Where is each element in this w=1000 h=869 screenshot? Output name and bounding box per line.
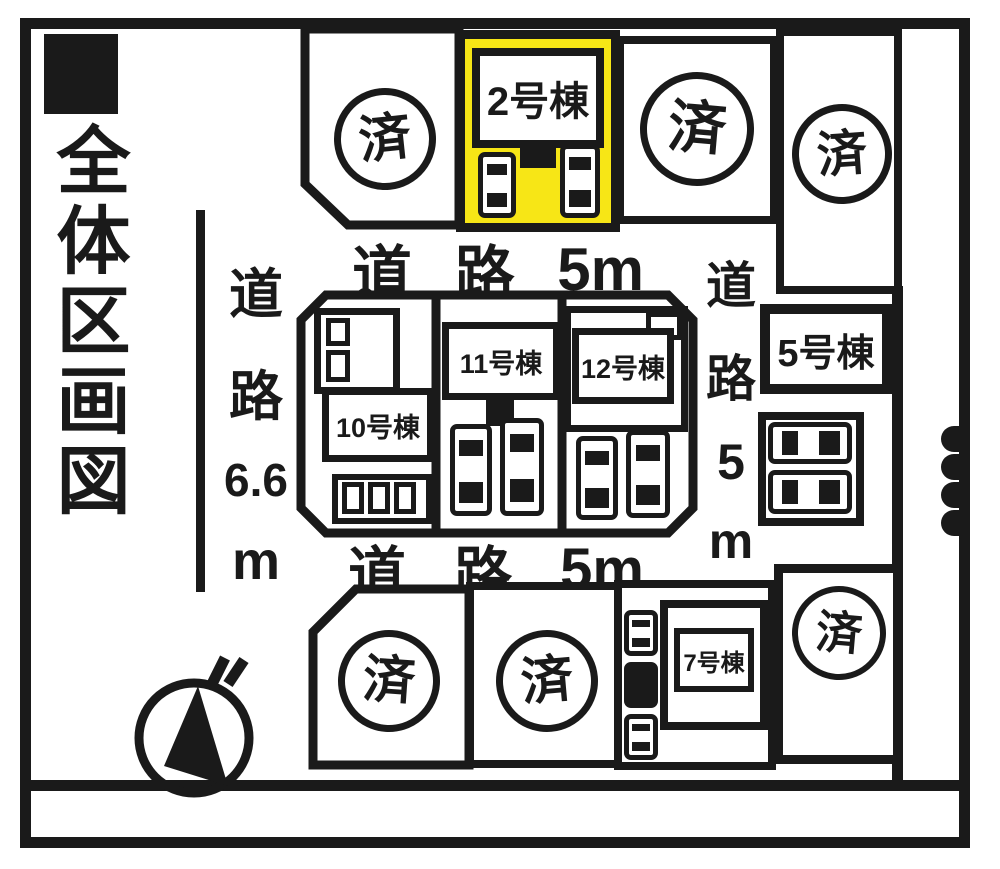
sold-stamp-text: 済 bbox=[815, 127, 868, 180]
building-11-label-text: 11号棟 bbox=[460, 342, 543, 381]
car-icon bbox=[450, 424, 492, 516]
boundary-scallop bbox=[941, 482, 961, 508]
boundary-scallop bbox=[941, 454, 961, 480]
sold-stamp-text: 済 bbox=[361, 653, 417, 709]
sold-stamp-text: 済 bbox=[519, 653, 575, 709]
building-10-label-text: 10号棟 bbox=[336, 406, 420, 445]
figure-title: 全体区画図 bbox=[36, 122, 124, 558]
title-marker-icon bbox=[44, 34, 118, 114]
car-stall bbox=[394, 482, 416, 514]
car-icon bbox=[624, 662, 658, 708]
boundary-scallop bbox=[941, 510, 961, 536]
road-label-right: 道 路 5 m bbox=[698, 246, 764, 570]
sold-stamp-text: 済 bbox=[666, 98, 729, 161]
car-icon bbox=[624, 610, 658, 656]
road-char: 道 bbox=[706, 246, 756, 318]
road-char: 路 bbox=[229, 352, 283, 431]
building-12-label-text: 12号棟 bbox=[581, 347, 665, 386]
building-7-label: 7号棟 bbox=[674, 628, 754, 692]
site-plan-page: { "title": { "marker": "■", "text": "全体区… bbox=[0, 0, 1000, 869]
road-edge-line-left bbox=[196, 210, 205, 592]
building-10-label: 10号棟 bbox=[322, 388, 434, 462]
car-stall bbox=[368, 482, 390, 514]
car-icon bbox=[560, 144, 600, 218]
building-2-label-text: 2号棟 bbox=[487, 69, 589, 127]
road-char: 路 bbox=[706, 339, 756, 411]
car-icon bbox=[626, 430, 670, 518]
road-width-value: 5 bbox=[717, 433, 745, 491]
building-footprint bbox=[520, 140, 556, 168]
car-icon bbox=[576, 436, 618, 520]
building-11-label: 11号棟 bbox=[442, 322, 560, 400]
car-icon bbox=[768, 470, 852, 514]
building-5-label: 5号棟 bbox=[760, 304, 892, 394]
compass-north-icon bbox=[124, 646, 264, 796]
road-label-left: 道 路 6.6 m bbox=[210, 250, 302, 592]
car-icon bbox=[768, 422, 852, 464]
car-icon bbox=[624, 714, 658, 760]
car-stall bbox=[342, 482, 364, 514]
sold-stamp-text: 済 bbox=[814, 608, 864, 658]
building-7-label-text: 7号棟 bbox=[683, 643, 744, 678]
car-stall bbox=[326, 350, 350, 382]
sold-stamp-text: 済 bbox=[356, 110, 413, 167]
road-width-value: 6.6 bbox=[224, 453, 288, 507]
car-icon bbox=[478, 152, 516, 218]
building-12-label: 12号棟 bbox=[572, 328, 674, 404]
road-width-unit: m bbox=[232, 530, 280, 592]
car-stall bbox=[326, 318, 350, 346]
car-icon bbox=[500, 418, 544, 516]
building-5-label-text: 5号棟 bbox=[777, 322, 874, 377]
road-width-unit: m bbox=[709, 512, 753, 570]
boundary-scallop bbox=[941, 426, 961, 452]
road-char: 道 bbox=[229, 250, 283, 329]
building-2-label: 2号棟 bbox=[472, 48, 604, 148]
